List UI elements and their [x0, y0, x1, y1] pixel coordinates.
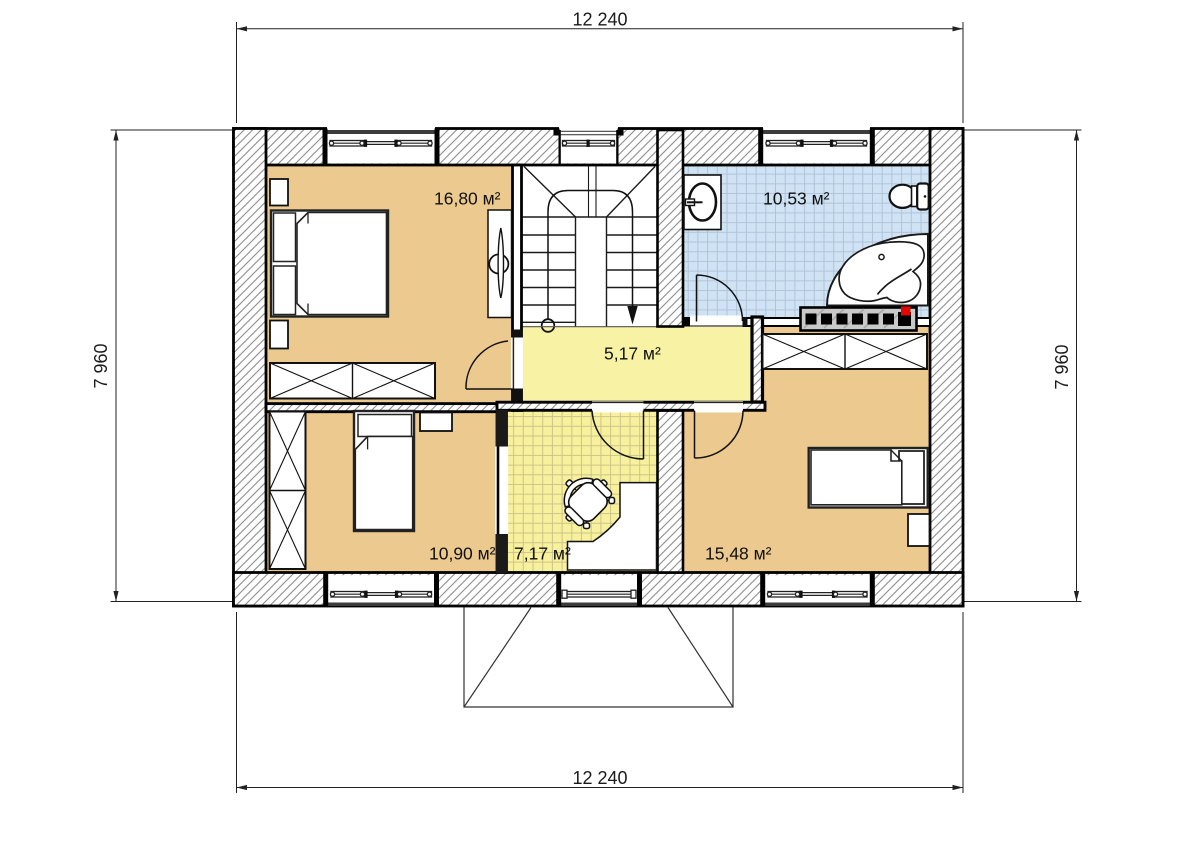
svg-text:5,17 м²: 5,17 м²	[604, 344, 661, 364]
svg-text:16,80 м²: 16,80 м²	[434, 189, 501, 209]
svg-text:12 240: 12 240	[572, 10, 627, 30]
svg-text:7,17 м²: 7,17 м²	[514, 544, 571, 564]
svg-text:12 240: 12 240	[572, 768, 627, 788]
svg-text:7 960: 7 960	[91, 343, 111, 388]
svg-text:10,90 м²: 10,90 м²	[429, 544, 496, 564]
svg-text:10,53 м²: 10,53 м²	[763, 189, 830, 209]
svg-text:15,48 м²: 15,48 м²	[705, 544, 772, 564]
svg-text:7 960: 7 960	[1052, 344, 1072, 389]
